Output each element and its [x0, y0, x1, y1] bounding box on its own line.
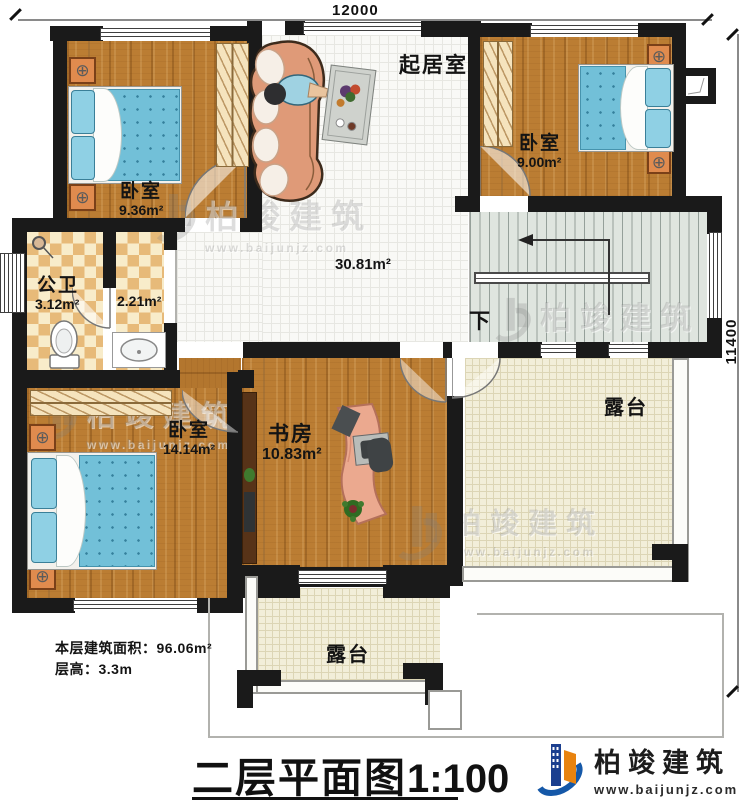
pillow — [71, 90, 95, 134]
brand-logo-icon — [532, 740, 586, 798]
brand-logo: 柏竣建筑 www.baijunjz.com — [532, 740, 738, 798]
terrace-parapet — [256, 680, 442, 694]
title-underline — [192, 797, 458, 800]
room-label-bedroom-tl: 卧室 — [120, 182, 162, 201]
bay-window-frame — [708, 68, 716, 104]
pillow — [71, 136, 95, 180]
window — [608, 344, 652, 356]
shelf-equipment — [244, 492, 255, 532]
window — [73, 600, 201, 611]
room-label-bedroom-tr: 卧室 — [519, 134, 561, 153]
wall — [455, 196, 478, 212]
shower-head — [30, 234, 56, 260]
terrace-parapet — [462, 566, 689, 582]
window — [540, 344, 580, 356]
wall-post — [383, 565, 450, 598]
pillow — [645, 109, 671, 148]
wall — [12, 388, 27, 613]
person — [258, 66, 330, 120]
brand-name: 柏竣建筑 — [594, 741, 738, 780]
wall — [707, 212, 722, 234]
footprint-outline — [208, 598, 210, 738]
bay-window-glass — [686, 76, 708, 96]
pillow — [31, 512, 57, 563]
dimension-line-top — [18, 19, 712, 21]
pillow — [31, 458, 57, 509]
floor-plan: 柏竣建筑 www.baijunjz.com 柏竣建筑 www.baijunjz.… — [0, 0, 750, 810]
room-label-living: 起居室 — [399, 55, 468, 76]
shelf-plant — [244, 468, 255, 482]
door-arc — [185, 158, 247, 220]
window — [0, 253, 25, 313]
terrace-parapet — [672, 358, 689, 570]
living-room-floor-west — [177, 232, 262, 342]
footprint-outline — [477, 613, 724, 615]
wall — [53, 26, 67, 232]
wardrobe — [30, 390, 172, 416]
nightstand: ⊕ — [69, 57, 96, 84]
window — [298, 570, 387, 584]
wall — [447, 396, 463, 586]
wall-post — [237, 670, 253, 708]
dimension-right-value: 11400 — [723, 314, 740, 369]
room-area-bedroom-tl: 9.36m² — [119, 203, 163, 217]
footprint-outline — [208, 736, 724, 738]
room-area-bedroom-bl: 14.14m² — [163, 442, 215, 456]
wall — [468, 23, 480, 212]
wall — [103, 232, 116, 288]
room-label-terrace-bottom: 露台 — [326, 645, 370, 665]
wardrobe — [483, 41, 513, 147]
room-label-bathroom: 公卫 — [37, 276, 79, 295]
wall — [12, 370, 180, 388]
stairs-down-label: 下 — [469, 311, 490, 332]
brand-url: www.baijunjz.com — [594, 782, 738, 797]
bed-mattress — [79, 455, 155, 567]
dimension-top-value: 12000 — [332, 2, 379, 19]
room-area-washroom: 2.21m² — [117, 294, 161, 308]
wall — [243, 342, 400, 358]
nightstand: ⊕ — [29, 424, 56, 451]
room-area-bedroom-tr: 9.00m² — [517, 155, 561, 169]
stair-handrail — [474, 272, 650, 284]
wall-post — [672, 544, 688, 582]
window — [530, 25, 642, 37]
footprint-outline — [722, 613, 724, 738]
wall — [576, 342, 610, 358]
toilet — [48, 318, 82, 370]
room-area-living: 30.81m² — [335, 257, 391, 272]
wall — [12, 218, 185, 232]
wall — [285, 20, 305, 35]
room-label-study: 书房 — [268, 424, 314, 445]
window — [303, 22, 425, 34]
wall — [240, 218, 262, 232]
wall — [672, 23, 686, 210]
room-label-bedroom-bl: 卧室 — [168, 421, 210, 440]
room-area-study: 10.83m² — [262, 447, 322, 463]
stair-direction-arrow — [518, 234, 533, 246]
sink — [118, 336, 160, 364]
desk-chair — [366, 436, 394, 473]
window — [100, 28, 214, 40]
wall — [648, 342, 722, 358]
table-decor-flowers — [327, 78, 374, 138]
plant — [340, 496, 366, 522]
wall — [12, 598, 75, 613]
drawing-title-text: 二层平面图 — [192, 744, 407, 804]
nightstand: ⊕ — [647, 150, 671, 174]
door-arc — [452, 358, 502, 400]
room-label-terrace-right: 露台 — [604, 398, 648, 418]
door-arc — [400, 358, 448, 404]
drawing-title-scale: 1:100 — [407, 757, 509, 802]
bed-sheet — [620, 66, 648, 150]
drawing-title: 二层平面图 1:100 — [192, 744, 509, 804]
pillow — [645, 68, 671, 107]
wall — [443, 342, 452, 358]
stair-guide-line — [530, 239, 610, 241]
info-floor-height: 层高：3.3m — [55, 662, 132, 676]
wall — [498, 342, 542, 358]
room-area-bathroom: 3.12m² — [35, 297, 79, 311]
opening-threshold — [175, 250, 177, 323]
stair-guide-line — [608, 239, 610, 315]
entry-step — [428, 690, 462, 730]
wardrobe — [216, 43, 249, 167]
wall — [528, 196, 722, 212]
window — [709, 232, 722, 322]
nightstand: ⊕ — [69, 184, 96, 211]
wall — [164, 232, 177, 250]
info-building-area: 本层建筑面积：96.06m² — [55, 641, 212, 655]
